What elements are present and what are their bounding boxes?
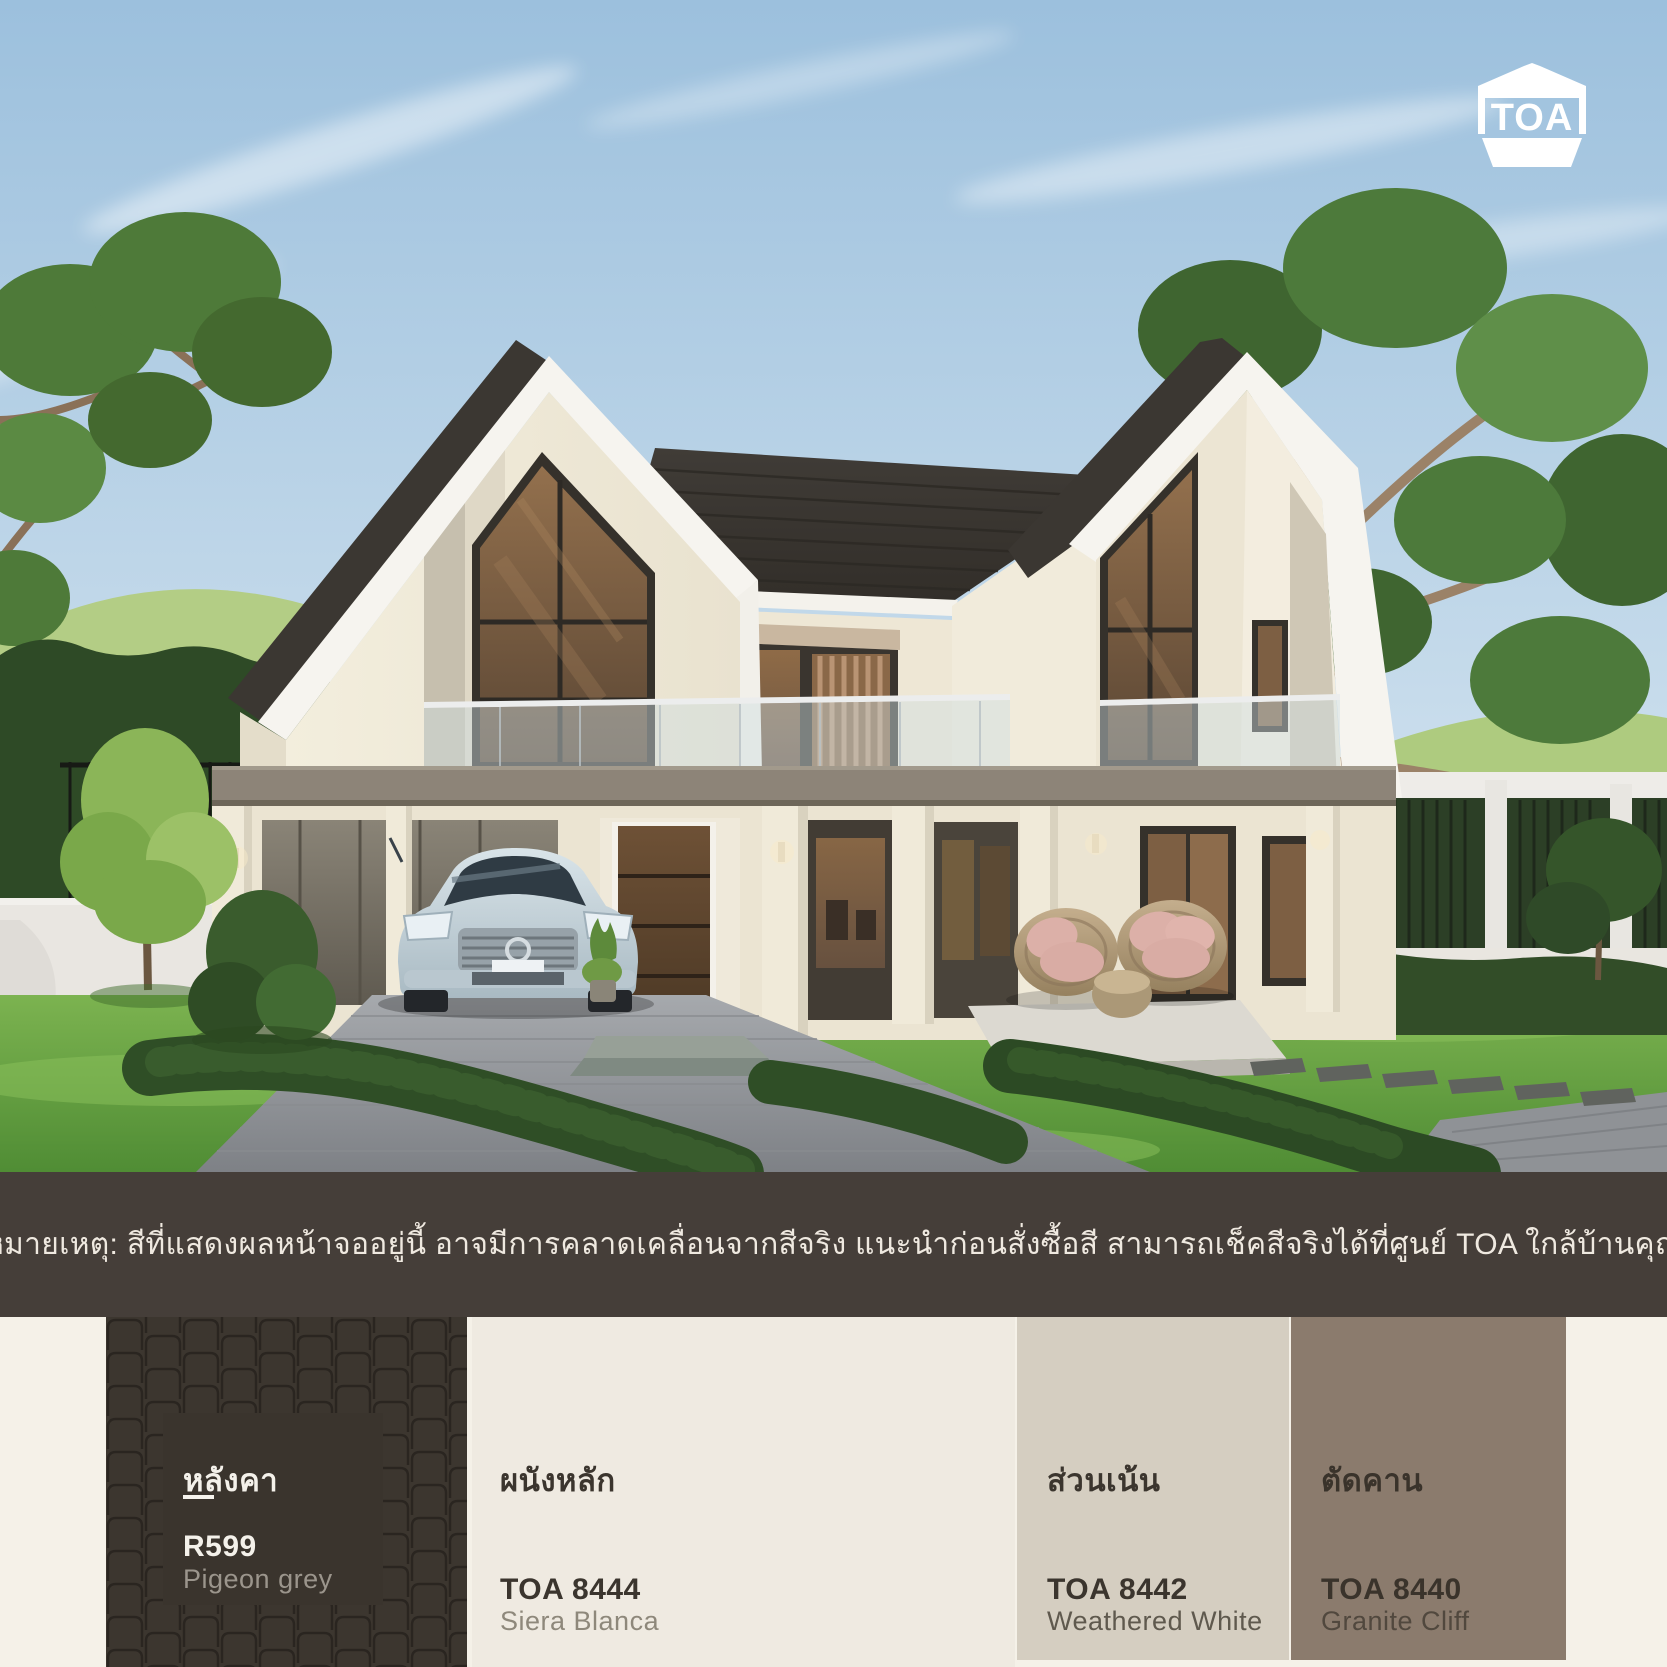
toa-logo-icon: TOA [1468, 60, 1596, 170]
glass-wall-entry [808, 820, 893, 1020]
label-underline [183, 1495, 214, 1499]
swatch-area-label: ผนังหลัก [500, 1455, 616, 1505]
toa-logo: TOA [1468, 60, 1596, 170]
swatch-accent: ส่วนเน้น TOA 8442 Weathered White [1017, 1317, 1289, 1660]
entry-steps [570, 1036, 782, 1076]
car-headlight [404, 912, 452, 940]
swatch-color-code: TOA 8440 [1321, 1573, 1462, 1607]
disclaimer-bar: หมายเหตุ: สีที่แสดงผลหน้าจออยู่นี้ อาจมี… [0, 1172, 1667, 1317]
glass-wall-living [934, 822, 1018, 1018]
swatch-color-name: Pigeon grey [183, 1564, 333, 1595]
disclaimer-text: หมายเหตุ: สีที่แสดงผลหน้าจออยู่นี้ อาจมี… [0, 1221, 1667, 1268]
license-plate [492, 960, 544, 972]
swatch-area-label: ตัดคาน [1321, 1455, 1423, 1505]
toa-paint-poster: TOA หมายเหตุ: สีที่แสดงผลหน้าจออยู่นี้ อ… [0, 0, 1667, 1667]
swatch-color-name: Granite Cliff [1321, 1606, 1470, 1637]
swatch-main-wall: ผนังหลัก TOA 8444 Siera Blanca [472, 1317, 1015, 1667]
house-scene [0, 0, 1667, 1172]
swatch-roof: หลังคา R599 Pigeon grey [106, 1317, 467, 1667]
color-swatch-section: หลังคา R599 Pigeon grey ผนังหลัก TOA 844… [0, 1317, 1667, 1667]
wicker-table [1092, 970, 1152, 1018]
balcony-railing-right [1100, 694, 1340, 778]
roof-tile-pattern [106, 1317, 467, 1667]
swatch-beam-trim: ตัดคาน TOA 8440 Granite Cliff [1291, 1317, 1566, 1660]
swatch-color-code: R599 [183, 1530, 257, 1564]
toa-logo-text: TOA [1491, 97, 1574, 139]
house-render-image [0, 0, 1667, 1172]
swatch-color-name: Weathered White [1047, 1606, 1263, 1637]
swatch-area-label: ส่วนเน้น [1047, 1455, 1161, 1505]
swatch-color-code: TOA 8444 [500, 1573, 641, 1607]
swatch-color-code: TOA 8442 [1047, 1573, 1188, 1607]
balcony-railing [424, 694, 1010, 778]
swatch-color-name: Siera Blanca [500, 1606, 659, 1637]
